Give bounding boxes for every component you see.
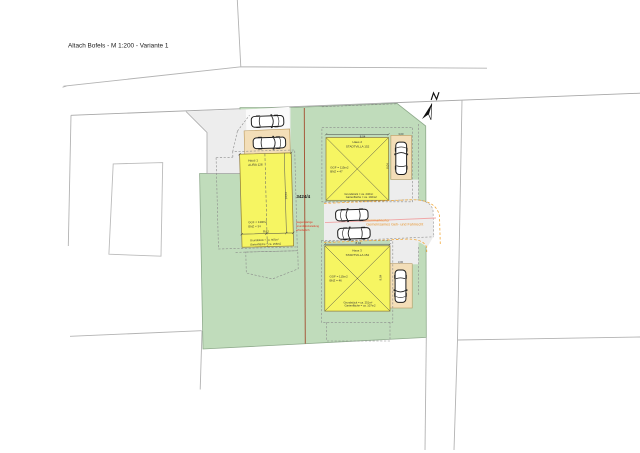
svg-text:14,63: 14,63 [284,192,288,200]
svg-text:3,00: 3,00 [398,260,404,264]
svg-text:BNZ = 47: BNZ = 47 [330,170,343,174]
svg-text:BNZ = 34: BNZ = 34 [248,224,261,228]
svg-text:Haus 3: Haus 3 [352,248,362,252]
svg-text:8,04: 8,04 [386,163,390,169]
svg-text:STADTVILLA 152: STADTVILLA 152 [346,145,370,149]
svg-text:Gemeinsames Geh- und Fahrrecht: Gemeinsames Geh- und Fahrrecht [366,223,423,227]
svg-text:Haus 2: Haus 2 [353,140,363,144]
svg-text:Gartenfläche = ca. 107m2: Gartenfläche = ca. 107m2 [345,304,377,308]
svg-text:Grundstück = ca. 605m²: Grundstück = ca. 605m² [250,238,279,243]
svg-text:STADTVILLA 152: STADTVILLA 152 [346,253,370,257]
svg-text:AURA 126: AURA 126 [248,163,263,167]
svg-text:8,04: 8,04 [355,241,361,245]
svg-text:3,00: 3,00 [398,132,404,136]
svg-text:8,04: 8,04 [360,135,366,139]
svg-text:8,04: 8,04 [378,274,382,280]
svg-text:Gartenfläche = ca. 258m2: Gartenfläche = ca. 258m2 [250,242,282,247]
svg-text:Grundstücksteilung: Grundstücksteilung [296,224,320,228]
svg-text:Gartenfläche = ca. 102m2: Gartenfläche = ca. 102m2 [346,195,378,199]
svg-text:8,61: 8,61 [263,229,269,233]
svg-text:Gegenwärtige: Gegenwärtige [296,220,313,224]
svg-text:erforderlich: erforderlich [296,228,310,232]
svg-text:Altach Bofels - M 1:200 - Vari: Altach Bofels - M 1:200 - Variante 1 [68,43,169,50]
svg-text:3424/4: 3424/4 [296,194,310,199]
svg-text:BNZ = 46: BNZ = 46 [330,279,343,283]
